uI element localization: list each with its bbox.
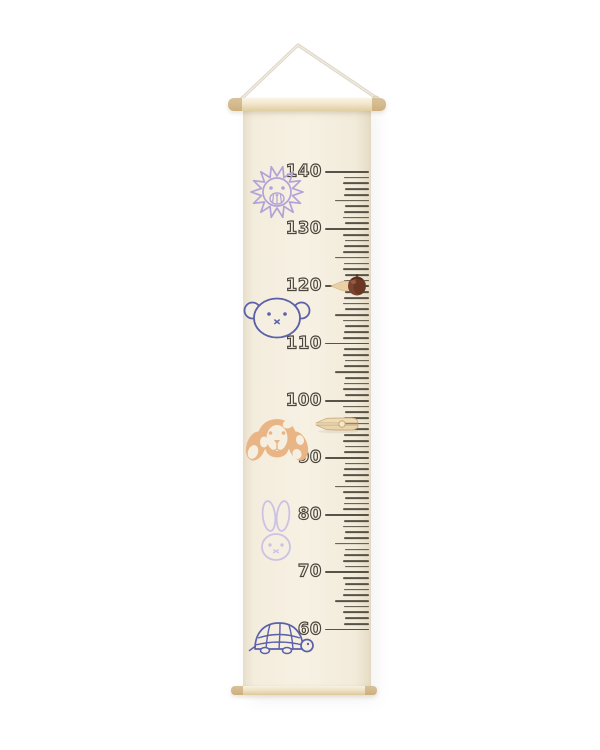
ruler-tick-minor [345,480,369,482]
ruler-tick-minor [345,583,369,585]
ruler-tick-minor [343,251,369,253]
ruler-tick-minor [345,188,369,190]
clothespin-jaw-bottom [316,425,358,430]
turtle-shell-net [256,623,303,649]
ruler-tick-minor [335,371,369,373]
ruler-tick-minor [345,377,369,379]
wooden-clothespin [314,414,362,434]
ruler-tick-minor [345,463,369,465]
ruler-tick-minor [344,246,369,248]
ruler-tick-minor [345,360,369,362]
dog-illustration [245,408,309,472]
ruler-tick-minor [345,308,369,310]
ruler-number-100: 100 [252,391,322,410]
ruler-tick-minor [343,491,369,493]
ruler-tick-minor [344,589,369,591]
ruler-tick-minor [343,268,369,270]
rabbit-ear-right [275,500,290,531]
rabbit-eye-right [280,543,283,546]
ruler-tick-minor [345,617,369,619]
ruler-tick-minor [344,434,369,436]
ruler-tick-minor [335,200,369,202]
ruler-tick-minor [345,240,369,242]
ruler-tick-minor [335,543,369,545]
lion-muzzle-hatch [273,195,282,204]
ruler-tick-minor [344,451,369,453]
rabbit-eye-left [268,543,271,546]
ruler-tick-minor [343,440,369,442]
bear-eye-left [267,312,271,316]
rabbit-illustration [253,498,299,568]
ruler-tick-minor [335,600,369,602]
turtle-foot-left [261,648,270,654]
ruler-tick-70 [325,571,369,573]
ruler-tick-minor [344,331,369,333]
ruler-tick-60 [325,629,369,631]
lion-eye-right [281,186,285,190]
ruler-tick-minor [344,263,369,265]
ruler-tick-minor [345,223,369,225]
ruler-tick-minor [343,526,369,528]
ruler-tick-minor [344,503,369,505]
growth-chart-photo: 14013012011010090807060 [0,0,600,750]
ruler-tick-minor [344,520,369,522]
ruler-tick-minor [344,194,369,196]
ruler-tick-minor [343,217,369,219]
turtle-eye [307,643,309,645]
ruler-tick-minor [345,326,369,328]
bead-highlight [351,280,356,284]
ruler-tick-minor [344,211,369,213]
ruler-tick-minor [344,623,369,625]
ruler-tick-minor [343,406,369,408]
ruler-tick-minor [343,560,369,562]
ruler-tick-80 [325,514,369,516]
ruler-tick-minor [335,486,369,488]
ruler-tick-minor [335,257,369,259]
turtle-head [301,640,313,652]
dog-eye-right [282,431,286,435]
ruler-tick-minor [343,509,369,511]
ruler-tick-minor [345,205,369,207]
ruler-tick-minor [343,474,369,476]
ruler-tick-minor [344,177,369,179]
clothespin-jaw-top [316,418,358,423]
rabbit-ear-left [261,500,276,531]
ruler-tick-minor [345,497,369,499]
ruler-tick-minor [344,366,369,368]
dog-eye-left [269,431,273,435]
ruler-tick-110 [325,343,369,345]
turtle-foot-right [283,648,292,654]
lion-mane [251,167,303,218]
clothespin-spring [339,421,345,427]
ruler-tick-minor [345,446,369,448]
ruler-tick-minor [345,566,369,568]
bear-head [254,299,300,338]
ruler-tick-minor [344,606,369,608]
ruler-tick-minor [345,532,369,534]
lion-eye-left [269,186,273,190]
ruler-tick-minor [343,577,369,579]
ruler-tick-140 [325,171,369,173]
ruler-tick-minor [343,320,369,322]
ruler-tick-minor [345,394,369,396]
lion-illustration [245,160,309,224]
ruler-tick-minor [344,348,369,350]
ruler-tick-minor [344,554,369,556]
bear-illustration [241,288,313,346]
ruler-tick-130 [325,228,369,230]
wooden-bead-marker [330,273,372,299]
ruler-tick-minor [343,183,369,185]
ruler-tick-minor [345,549,369,551]
rabbit-head [262,534,290,560]
ruler-tick-100 [325,400,369,402]
ruler-tick-minor [343,612,369,614]
ruler-tick-minor [343,303,369,305]
ruler-tick-minor [344,469,369,471]
ruler-tick-minor [343,594,369,596]
ruler-tick-90 [325,457,369,459]
ruler-tick-minor [343,354,369,356]
ruler-tick-minor [344,383,369,385]
ruler-tick-minor [343,337,369,339]
turtle-illustration [244,616,314,664]
ruler-tick-minor [344,537,369,539]
ruler-tick-minor [343,234,369,236]
ruler-tick-minor [335,314,369,316]
ruler-tick-minor [343,389,369,391]
ruler-tick-minor [345,411,369,413]
bear-eye-right [283,312,287,316]
